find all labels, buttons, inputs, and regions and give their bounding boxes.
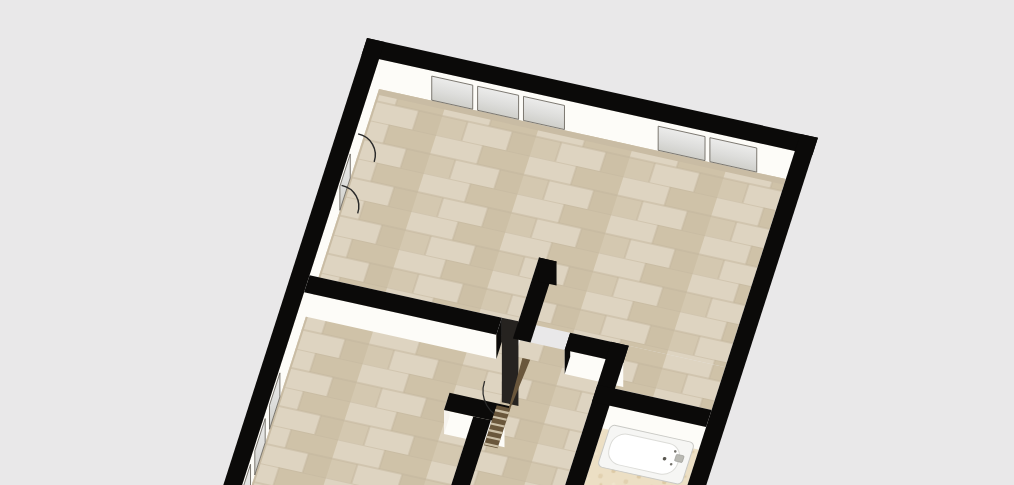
floor-plan-viewport <box>0 0 1014 485</box>
floor-plan-canvas[interactable] <box>0 0 1014 485</box>
bathtub-faucet <box>674 454 684 462</box>
